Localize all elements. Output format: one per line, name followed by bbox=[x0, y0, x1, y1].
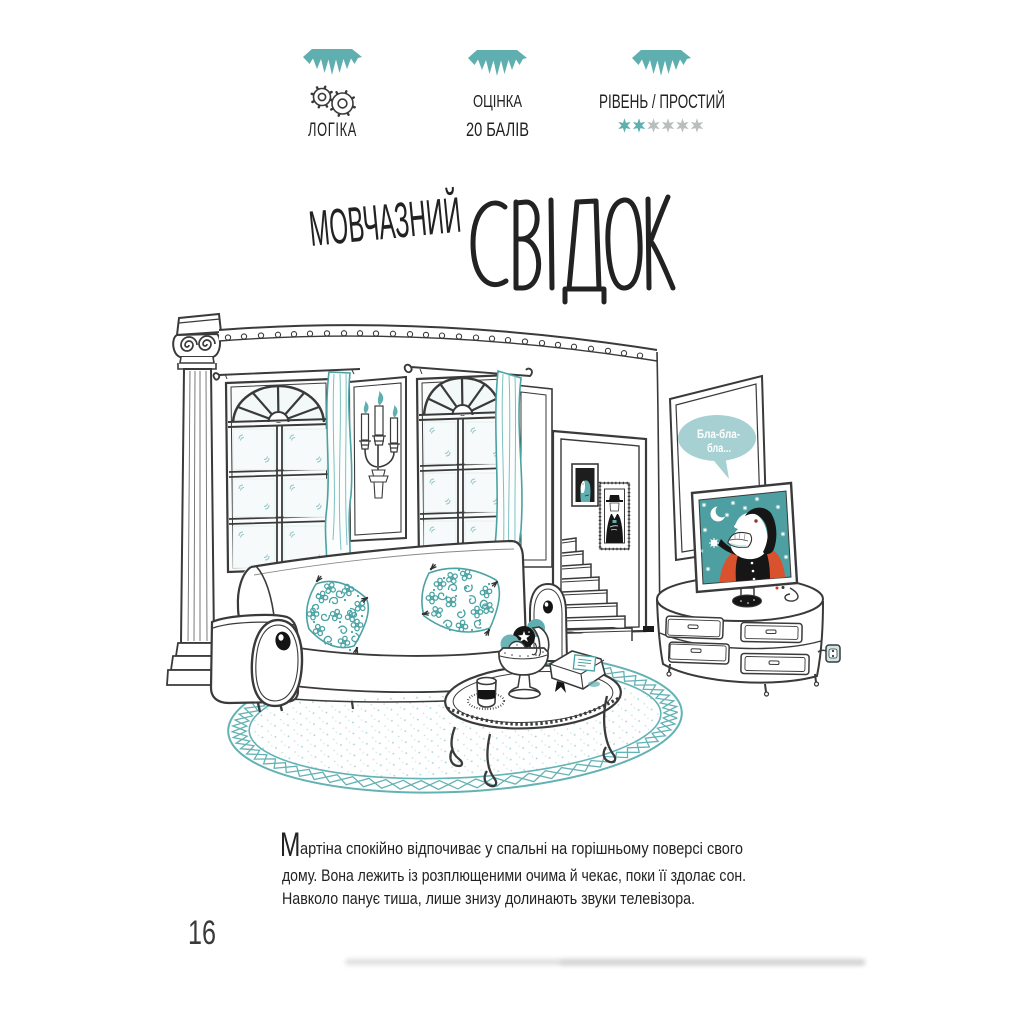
svg-text:ОЦІНКА: ОЦІНКА bbox=[473, 91, 522, 111]
svg-text:М: М bbox=[280, 826, 300, 864]
svg-text:Навколо панує тиша, лише знизу: Навколо панує тиша, лише знизу долинають… bbox=[282, 890, 695, 908]
svg-text:Бла-бла-: Бла-бла- bbox=[697, 427, 740, 441]
svg-text:ЛОГІКА: ЛОГІКА bbox=[308, 120, 357, 141]
svg-text:РІВЕНЬ / ПРОСТИЙ: РІВЕНЬ / ПРОСТИЙ bbox=[599, 91, 725, 113]
svg-text:артіна спокійно відпочиває у с: артіна спокійно відпочиває у спальні на … bbox=[300, 840, 743, 858]
svg-text:МОВЧАЗНИЙ: МОВЧАЗНИЙ bbox=[307, 186, 464, 257]
svg-text:дому. Вона лежить із розплющен: дому. Вона лежить із розплющеними очима … bbox=[282, 867, 746, 885]
svg-text:20 БАЛІВ: 20 БАЛІВ bbox=[466, 119, 529, 141]
svg-text:бла...: бла... bbox=[707, 441, 731, 455]
svg-text:16: 16 bbox=[188, 914, 216, 952]
